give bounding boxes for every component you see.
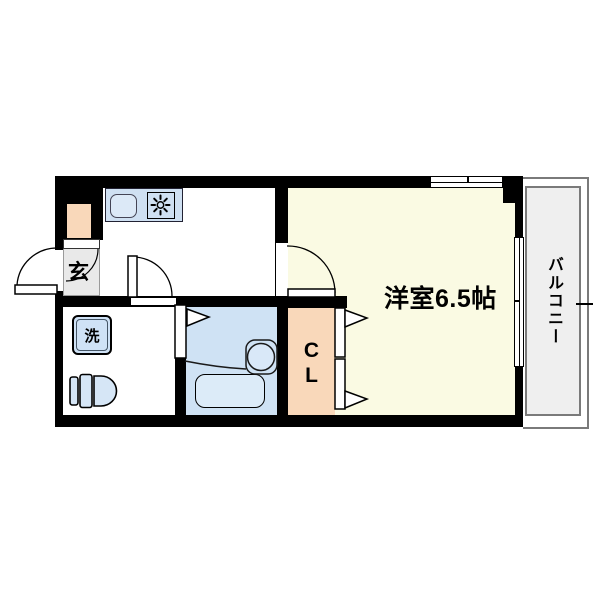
- wall-closet-top: [288, 296, 347, 308]
- entrance-label: 玄: [68, 256, 89, 286]
- floorplan: バルコニー 玄: [0, 0, 600, 600]
- main-room-door-gap: [276, 243, 288, 296]
- wall-right-lower: [515, 367, 523, 415]
- window-icon: [430, 176, 503, 188]
- washing-machine-icon: 洗: [72, 315, 112, 355]
- basin-icon: [183, 336, 279, 376]
- closet-label-c: C: [288, 338, 335, 363]
- front-door-gap: [55, 250, 63, 291]
- stove-burner-icon: [147, 192, 175, 219]
- window-icon: [514, 237, 524, 367]
- entrance-step: [63, 239, 100, 249]
- balcony-outer-rail-bottom: [523, 427, 589, 429]
- balcony-outer-rail-top: [523, 177, 589, 179]
- wall-bottom: [55, 415, 523, 427]
- wall-top: [55, 176, 430, 188]
- main-room-label: 洋室6.5帖: [384, 279, 497, 315]
- balcony-outer-rail-right: [587, 177, 589, 429]
- balcony-floor: バルコニー: [525, 186, 581, 416]
- wall-corner-top-right: [503, 176, 523, 203]
- shoe-cabinet: [65, 202, 93, 240]
- closet-label-l: L: [288, 363, 335, 388]
- front-door-swing-icon: [15, 248, 57, 294]
- sink-icon: [110, 194, 137, 218]
- wall-right-upper: [515, 203, 523, 237]
- balcony-label: バルコニー: [541, 256, 565, 346]
- closet-label: C L: [288, 338, 335, 388]
- kitchen-door-threshold: [130, 297, 177, 306]
- bathtub-icon: [195, 374, 265, 408]
- toilet-icon: [66, 370, 124, 412]
